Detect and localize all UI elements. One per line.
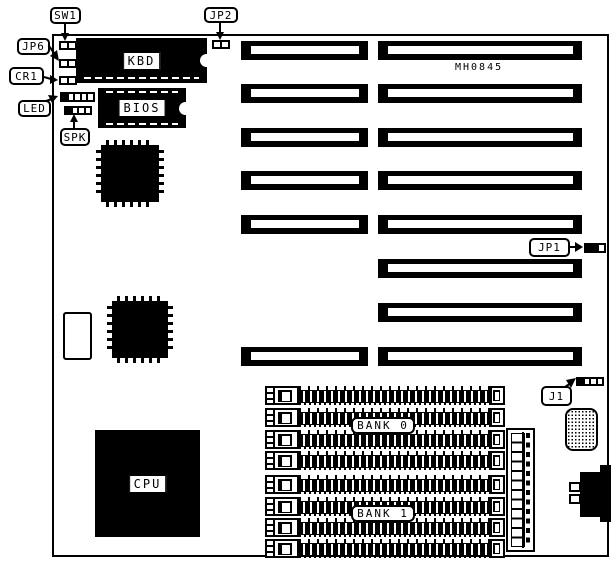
isa-slot (378, 215, 582, 234)
power-connector (506, 428, 535, 552)
chip-kbd: KBD (76, 38, 207, 83)
header-spk (64, 106, 92, 115)
chip-cpu: CPU (95, 430, 200, 537)
din-pin (569, 482, 581, 492)
callout-j1: J1 (541, 386, 572, 406)
jumper-jp1 (584, 243, 606, 253)
header-j1 (576, 377, 604, 386)
callout-jp6: JP6 (17, 38, 50, 55)
jumper-jp2 (212, 40, 230, 49)
isa-slot (378, 128, 582, 147)
isa-slot (378, 84, 582, 103)
isa-slot (241, 41, 368, 60)
isa-slot (241, 215, 368, 234)
chip-bios-label: BIOS (119, 99, 166, 117)
motherboard-diagram: MH0845 KBD BIOS CPU (0, 0, 616, 565)
callout-sw1: SW1 (50, 7, 81, 24)
callout-jp2: JP2 (204, 7, 238, 23)
callout-jp1: JP1 (529, 238, 570, 257)
chip-kbd-label: KBD (123, 52, 161, 70)
jumper-cr1 (59, 76, 77, 85)
isa-slot (241, 128, 368, 147)
isa-slot (378, 303, 582, 322)
header-led (60, 92, 95, 102)
qfp-chip (107, 296, 173, 363)
isa-slot (241, 84, 368, 103)
jumper-jp6 (59, 59, 77, 68)
chip-cpu-label: CPU (129, 475, 167, 493)
simm-socket (265, 475, 505, 494)
simm-socket (265, 386, 505, 405)
din-pin (569, 494, 581, 504)
qfp-chip (96, 140, 164, 207)
bank1-label: BANK 1 (351, 505, 415, 522)
isa-slot (378, 347, 582, 366)
isa-slot (378, 171, 582, 190)
board-model-text: MH0845 (455, 62, 503, 73)
bank0-label: BANK 0 (351, 417, 415, 434)
jumper-sw1 (59, 41, 77, 50)
callout-led: LED (18, 100, 51, 117)
din-connector-body (580, 472, 608, 517)
isa-slot (378, 41, 582, 60)
isa-slot (378, 259, 582, 278)
simm-socket (265, 451, 505, 470)
isa-slot (241, 171, 368, 190)
callout-spk: SPK (60, 128, 90, 146)
oscillator (63, 312, 92, 360)
isa-slot (241, 347, 368, 366)
capacitor (565, 408, 598, 451)
chip-bios: BIOS (98, 88, 186, 128)
simm-socket (265, 539, 505, 558)
callout-cr1: CR1 (9, 67, 44, 85)
